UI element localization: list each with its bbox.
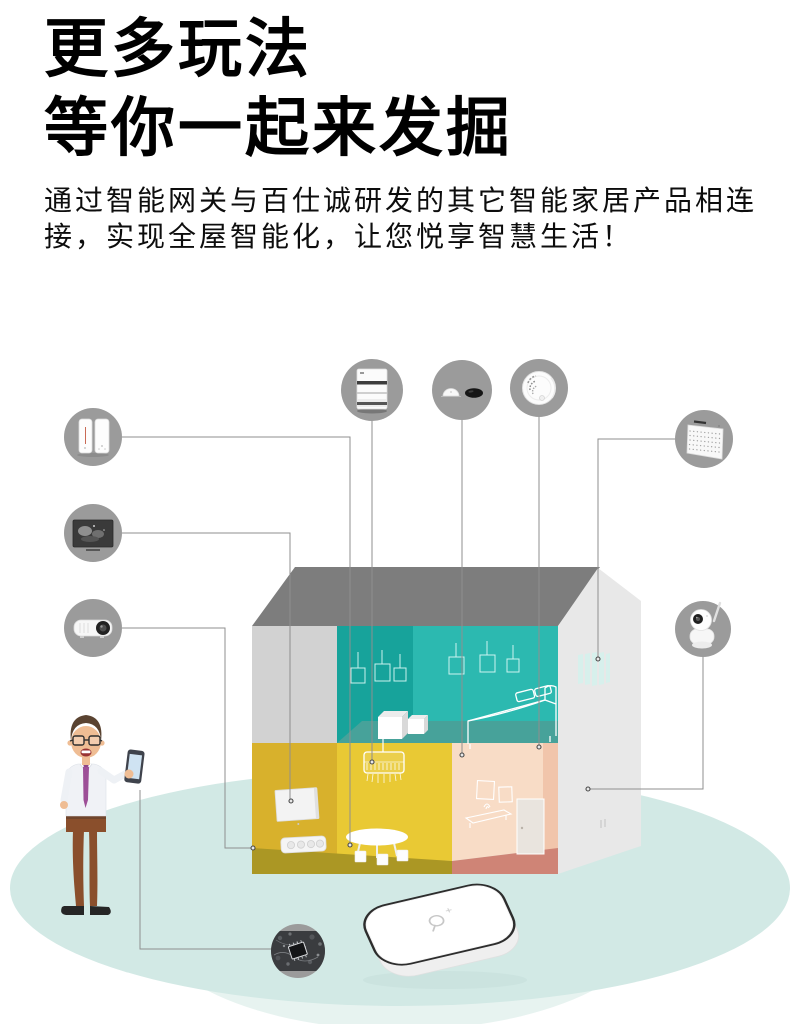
chip-module-icon <box>271 931 325 971</box>
device-circle-ac-panel <box>675 410 733 468</box>
device-circle-smart-tv <box>64 504 122 562</box>
pink-room-door <box>517 799 544 854</box>
house-illustration <box>252 567 641 874</box>
smoke-detector-icon <box>523 372 556 405</box>
projector-icon <box>74 620 112 638</box>
smart-tv-icon <box>73 520 113 550</box>
soundbar <box>281 836 327 853</box>
device-circle-chip-module <box>271 924 325 978</box>
teal-room-floor <box>337 721 558 743</box>
room-gray-wall <box>252 626 337 743</box>
device-circle-smart-appliances <box>64 408 122 466</box>
device-circle-smoke-detector <box>510 359 568 417</box>
hand <box>125 770 134 779</box>
device-circle-curtain-motor <box>341 359 403 421</box>
house-gable-wall <box>558 568 641 874</box>
curtain-motor-icon <box>357 369 387 414</box>
room-pink-side-wall <box>543 743 558 852</box>
house-roof <box>252 567 600 626</box>
device-circle-ip-camera <box>675 601 731 657</box>
shoe-left <box>61 906 84 915</box>
scene-illustration <box>0 0 800 1024</box>
smart-home-promo-page: 更多玩法 等你一起来发掘 通过智能网关与百仕诚研发的其它智能家居产品相连 接，实… <box>0 0 800 1024</box>
device-circle-projector <box>64 599 122 657</box>
shoe-right <box>90 906 111 915</box>
smartphone <box>124 749 145 784</box>
device-circle-motion-sensors <box>432 360 492 420</box>
